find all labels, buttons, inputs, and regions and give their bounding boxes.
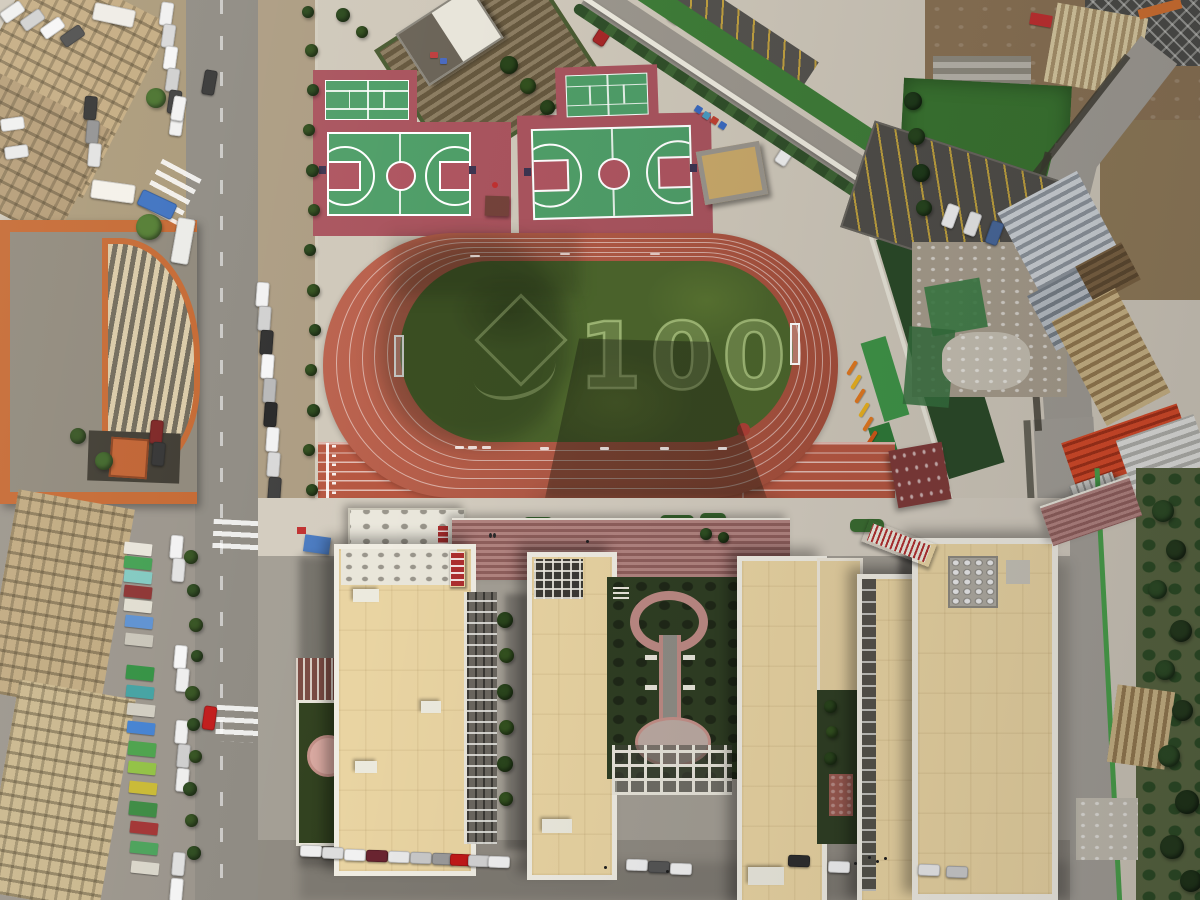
person <box>493 533 496 538</box>
person <box>666 870 669 873</box>
person <box>489 533 492 538</box>
person <box>854 862 857 865</box>
person <box>868 856 871 859</box>
person <box>586 540 589 543</box>
person <box>604 866 607 869</box>
person <box>876 860 879 863</box>
person <box>884 857 887 860</box>
aerial-photo-school-campus: 100 <box>0 0 1200 900</box>
layer-people <box>0 0 1200 900</box>
